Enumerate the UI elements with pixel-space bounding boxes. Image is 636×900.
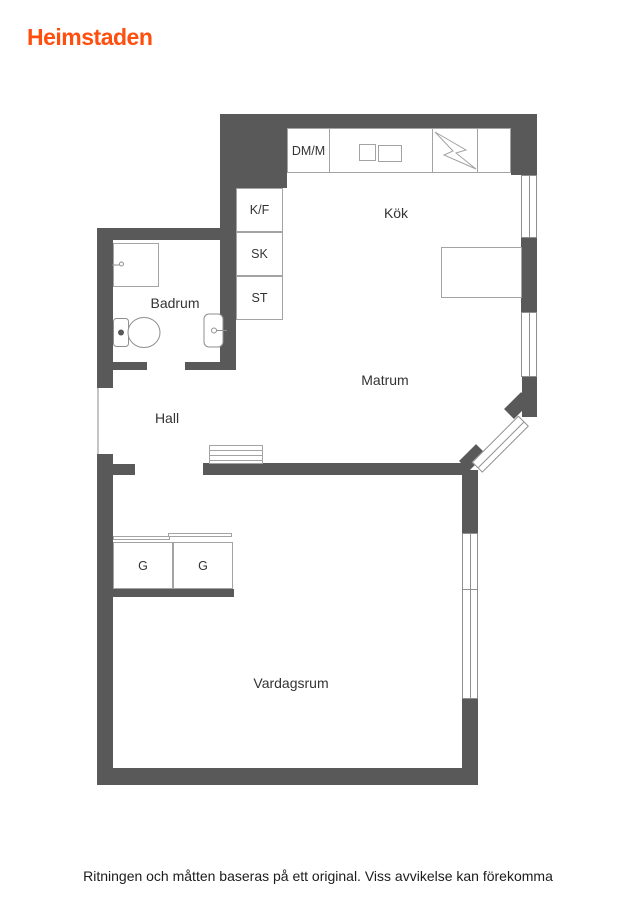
kitchen-counter-end — [477, 128, 511, 173]
wall-hall-stub — [113, 464, 135, 475]
shower-faucet-icon — [112, 259, 126, 270]
wall-badrum-bottom-left — [113, 362, 147, 370]
sink-basin-small — [359, 144, 376, 161]
wall-bottom — [97, 768, 478, 785]
window-livingroom — [462, 533, 478, 699]
floorplan-page: Heimstaden DM/M K/F SK ST — [0, 0, 636, 900]
closet-st: ST — [236, 276, 283, 320]
wall-right-between-windows — [521, 238, 537, 312]
sink-basin-large — [378, 145, 402, 162]
wall-livingroom-right-lower — [462, 699, 478, 768]
wall-left-upper — [97, 240, 113, 388]
fridge-freezer-closet: K/F — [236, 188, 283, 232]
g2-label: G — [198, 559, 208, 573]
disclaimer-text: Ritningen och måtten baseras på ett orig… — [0, 868, 636, 884]
matrum-table — [441, 247, 522, 298]
wall-livingroom-right-upper — [462, 470, 478, 533]
wardrobe-g2: G — [173, 542, 233, 589]
wall-closet-bottom — [113, 589, 234, 597]
sk-label: SK — [251, 247, 268, 261]
kf-label: K/F — [250, 203, 269, 217]
room-label-badrum: Badrum — [150, 295, 199, 311]
hall-shelf-unit — [209, 445, 263, 464]
bathroom-sink-icon — [203, 312, 230, 349]
wall-left-lower — [97, 454, 113, 785]
room-label-matrum: Matrum — [361, 372, 408, 388]
stove-unit — [432, 128, 478, 173]
entrance-door-opening — [97, 388, 99, 454]
wardrobe-sliding-door-right — [168, 533, 232, 537]
wall-top-right-chunk — [511, 114, 537, 175]
room-label-kok: Kök — [384, 205, 408, 221]
dishwasher-microwave-unit: DM/M — [287, 128, 330, 173]
window-divider — [463, 589, 477, 590]
wall-badrum-bottom-right — [185, 362, 236, 370]
window-diagonal — [472, 416, 529, 473]
kitchen-sink-counter — [329, 128, 433, 173]
heimstaden-logo: Heimstaden — [27, 24, 152, 51]
wall-hall-bottom — [203, 463, 470, 475]
dmm-label: DM/M — [292, 144, 325, 158]
room-label-vardagsrum: Vardagsrum — [253, 675, 328, 691]
wardrobe-g1: G — [113, 542, 173, 589]
closet-sk: SK — [236, 232, 283, 276]
wall-kitchen-left-chunk — [220, 130, 287, 188]
g1-label: G — [138, 559, 148, 573]
window-matrum — [521, 312, 537, 377]
st-label: ST — [252, 291, 268, 305]
stove-lightning-icon — [433, 129, 477, 172]
wall-badrum-top — [97, 228, 236, 240]
wardrobe-sliding-door-left — [113, 536, 170, 540]
room-label-hall: Hall — [155, 410, 179, 426]
window-kitchen-upper — [521, 175, 537, 238]
toilet-icon — [112, 315, 164, 351]
